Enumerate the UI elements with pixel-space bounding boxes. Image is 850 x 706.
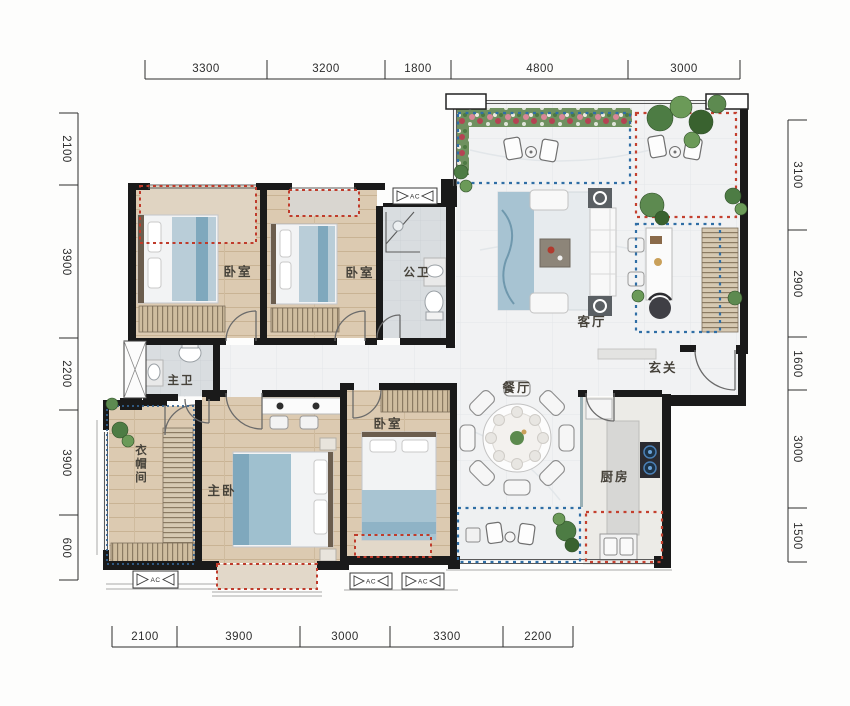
plant-right-wall-2 — [728, 291, 742, 305]
dim-bottom-1: 3900 — [225, 631, 253, 643]
dim-right-0: 3100 — [791, 161, 803, 189]
dimension-left: 2100 3900 2200 3900 600 — [59, 113, 78, 580]
label-dining-room: 餐厅 — [501, 380, 531, 395]
side-table-top — [588, 188, 612, 208]
sofa-seat-bottom — [530, 293, 568, 313]
dim-left-4: 600 — [60, 538, 72, 559]
label-kitchen: 厨房 — [600, 469, 629, 484]
label-master-bedroom: 主卧 — [207, 483, 236, 498]
ac-marker-top: AC — [393, 188, 437, 204]
label-living-room: 客厅 — [576, 314, 606, 329]
label-foyer: 玄关 — [648, 360, 677, 375]
dim-left-1: 3900 — [60, 248, 72, 276]
coffee-table — [540, 239, 570, 267]
planter — [456, 108, 632, 127]
dim-left-3: 3900 — [60, 449, 72, 477]
dimension-top: 3300 3200 1800 4800 3000 — [145, 60, 740, 79]
dim-top-3: 4800 — [526, 63, 554, 75]
floor-plan-page: AC AC AC AC 卧室 卧室 公卫 客厅 玄关 餐厅 主卫 衣帽间 主 — [0, 0, 850, 706]
bed-bedroom-c — [362, 432, 436, 540]
label-cloakroom: 衣帽间 — [134, 443, 147, 484]
dim-bottom-0: 2100 — [131, 631, 159, 643]
dim-top-0: 3300 — [192, 63, 220, 75]
master-desk — [262, 398, 342, 414]
plant-corridor-left — [106, 398, 118, 410]
label-bedroom-b: 卧室 — [345, 265, 374, 280]
ac-label: AC — [418, 579, 428, 586]
dim-top-2: 1800 — [404, 63, 432, 75]
ac-marker-bottom-left: AC — [133, 571, 178, 588]
plant-study-desk — [632, 290, 644, 302]
wardrobe-bedroom-c — [381, 390, 450, 412]
label-bedroom-a: 卧室 — [223, 264, 252, 279]
label-bedroom-c: 卧室 — [373, 416, 402, 431]
ac-marker-bottom-mid: AC — [350, 573, 392, 589]
bed-bedroom-a — [138, 215, 218, 303]
bay-bedroom-b — [289, 190, 359, 216]
dim-top-1: 3200 — [312, 63, 340, 75]
rug-art — [498, 192, 534, 310]
dim-left-0: 2100 — [60, 135, 72, 163]
ac-label: AC — [366, 579, 376, 586]
dimension-bottom: 2100 3900 3000 3300 2200 — [112, 626, 573, 647]
dim-right-3: 3000 — [791, 435, 803, 463]
bed-bedroom-b — [271, 224, 337, 304]
dim-right-1: 2900 — [791, 270, 803, 298]
glass-partition-kitchen — [580, 397, 583, 507]
dim-bottom-3: 3300 — [433, 631, 461, 643]
dim-bottom-4: 2200 — [524, 631, 552, 643]
label-master-bath: 主卫 — [168, 373, 195, 387]
sofa-seat-top — [530, 190, 568, 210]
wardrobe-bedroom-b — [271, 308, 339, 332]
dim-left-2: 2200 — [60, 360, 72, 388]
dim-right-2: 1600 — [791, 350, 803, 378]
bookshelf — [702, 228, 738, 332]
laundry-sink — [600, 534, 637, 560]
ac-marker-bottom-right: AC — [402, 573, 444, 589]
stove — [640, 442, 660, 478]
ac-label: AC — [410, 194, 420, 201]
dim-bottom-2: 3000 — [331, 631, 359, 643]
ac-label: AC — [150, 577, 160, 584]
shaft-window-x — [124, 341, 146, 398]
pier-top-left — [446, 94, 486, 109]
dim-top-4: 3000 — [670, 63, 698, 75]
wardrobe-bedroom-a — [139, 306, 225, 332]
plant-living-left — [454, 165, 468, 179]
dim-right-4: 1500 — [791, 522, 803, 550]
label-public-bath: 公卫 — [404, 266, 431, 279]
sideboard — [598, 349, 656, 359]
dimension-right: 3100 2900 1600 3000 1500 — [788, 120, 807, 562]
side-table-bottom — [588, 296, 612, 316]
plant-right-wall-1 — [725, 188, 741, 204]
floor-plan-svg: AC AC AC AC 卧室 卧室 公卫 客厅 玄关 餐厅 主卫 衣帽间 主 — [0, 0, 850, 706]
